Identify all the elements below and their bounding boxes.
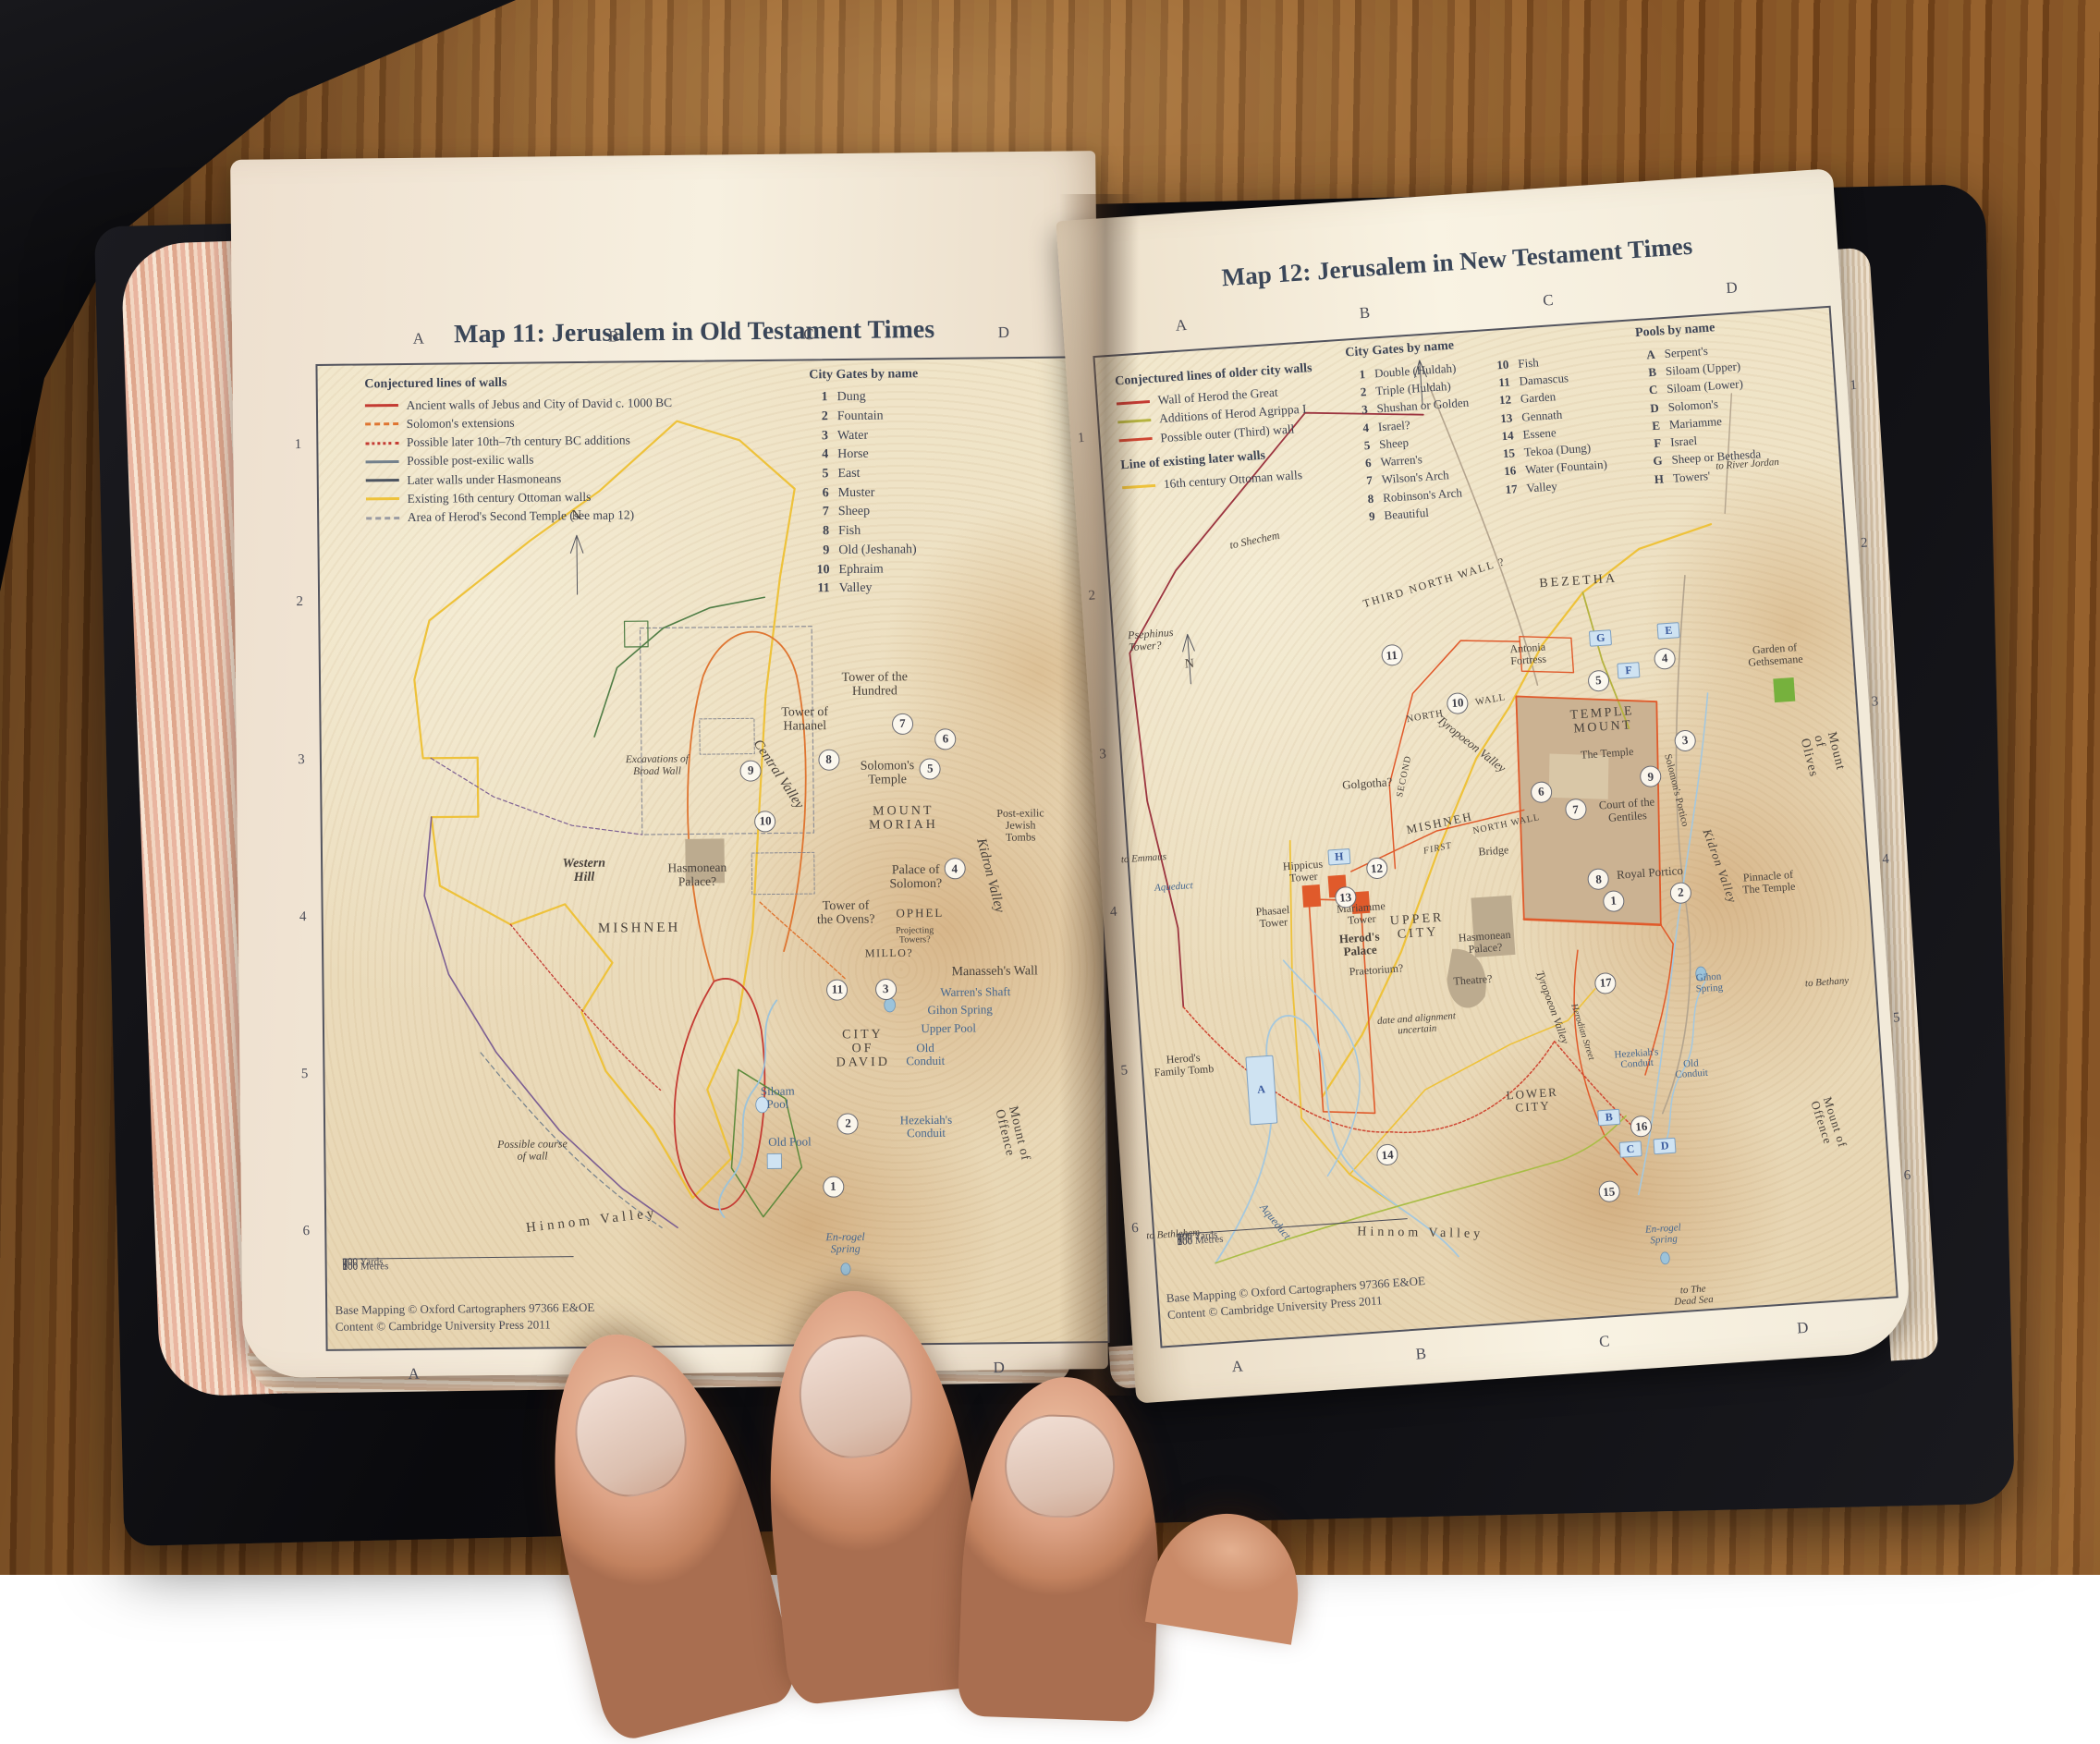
map-label: 3 <box>298 752 305 767</box>
map-label: A <box>1175 317 1188 335</box>
list-value: Fish <box>838 522 861 542</box>
list-value: Damascus <box>1519 369 1569 390</box>
list-value: Gennath <box>1521 405 1563 425</box>
fingernail <box>564 1365 699 1507</box>
map-label: 6 <box>302 1224 310 1238</box>
list-value: Dung <box>836 388 865 408</box>
list-value: Mariamme <box>1668 412 1722 433</box>
map-label: 5 <box>1120 1063 1129 1079</box>
list-key: H <box>1644 470 1664 489</box>
list-value: Fish <box>1518 353 1540 372</box>
gates-items: 1Dung2Fountain3Water4Horse5East6Muster7S… <box>809 385 1076 599</box>
pools-items: ASerpent'sBSiloam (Upper)CSiloam (Lower)… <box>1636 334 1837 489</box>
legend-swatch <box>365 460 398 463</box>
list-item: 7Sheep <box>811 501 1076 523</box>
gates-header: City Gates by name <box>809 364 1074 386</box>
map11-credits: Base Mapping © Oxford Cartographers 9736… <box>336 1297 804 1335</box>
legend-label: Possible later 10th–7th century BC addit… <box>407 431 630 452</box>
legend-swatch <box>1117 419 1151 423</box>
legend-swatch <box>366 497 399 500</box>
map12-legend-older-walls: Conjectured lines of older city walls Wa… <box>1115 357 1350 496</box>
list-item: 9Old (Jeshanah) <box>811 539 1076 561</box>
legend-swatch <box>366 517 399 519</box>
list-value: East <box>837 465 860 484</box>
list-value: Sheep <box>1379 433 1410 453</box>
legend-swatch <box>1119 437 1153 442</box>
map11-panel: Conjectured lines of walls Ancient walls… <box>315 356 1109 1351</box>
map12-gates-list: City Gates by name 1Double (Huldah)2Trip… <box>1345 324 1651 526</box>
list-key: 2 <box>810 408 828 427</box>
list-key: 4 <box>1349 419 1369 438</box>
map-label: B <box>1359 305 1371 323</box>
list-key: 7 <box>1353 471 1373 491</box>
map-label: A <box>1231 1358 1244 1375</box>
map-label: 4 <box>299 909 307 924</box>
list-key: 9 <box>811 542 829 561</box>
list-key: C <box>1639 381 1658 400</box>
list-key: 1 <box>809 388 827 408</box>
map11-gates-list: City Gates by name 1Dung2Fountain3Water4… <box>809 364 1077 600</box>
fingernail <box>793 1330 918 1463</box>
list-key: 12 <box>1492 391 1511 410</box>
list-key: 13 <box>1494 409 1513 428</box>
legend-swatch <box>365 422 398 425</box>
list-value: Old (Jeshanah) <box>838 541 917 561</box>
legend-items: Wall of Herod the GreatAdditions of Hero… <box>1116 379 1347 450</box>
list-value: Essene <box>1522 423 1557 444</box>
legend-swatch <box>365 479 398 482</box>
list-value: Towers' <box>1672 467 1711 487</box>
list-key: 3 <box>810 427 828 446</box>
list-value: Israel? <box>1377 416 1410 436</box>
list-item: 8Fish <box>811 520 1076 543</box>
list-key: 6 <box>1352 454 1372 473</box>
legend-swatch <box>1122 483 1155 488</box>
list-key: 6 <box>811 484 829 504</box>
list-key: 5 <box>810 465 828 484</box>
map-label: D <box>1726 279 1739 297</box>
map11-title: Map 11: Jerusalem in Old Testament Times <box>343 314 1045 351</box>
right-page[interactable]: Map 12: Jerusalem in New Testament Times <box>1056 168 1912 1403</box>
list-value: Fountain <box>837 407 884 426</box>
list-value: Garden <box>1520 388 1556 409</box>
list-key: 8 <box>1355 489 1374 508</box>
map-label: D <box>1796 1320 1809 1337</box>
legend-label: Possible post-exilic walls <box>407 451 533 471</box>
list-value: Israel <box>1670 432 1698 451</box>
map12-panel: Conjectured lines of older city walls Wa… <box>1093 306 1898 1348</box>
list-item: 10Ephraim <box>811 558 1076 580</box>
map-label: C <box>1543 292 1555 310</box>
list-key: A <box>1636 346 1655 365</box>
list-key: 8 <box>811 522 829 542</box>
list-key: 4 <box>810 445 828 465</box>
legend-header: Conjectured lines of walls <box>364 370 801 394</box>
list-item: 5East <box>810 462 1075 484</box>
map-label: 2 <box>296 594 303 609</box>
scale-tick: 300 Metres <box>342 1261 388 1273</box>
list-value: Horse <box>837 445 869 465</box>
legend-swatch <box>365 442 398 445</box>
list-value: Beautiful <box>1384 504 1430 524</box>
left-page[interactable]: Map 11: Jerusalem in Old Testament Times <box>230 151 1108 1378</box>
list-key: 11 <box>1491 373 1510 393</box>
photo-scene: Map 11: Jerusalem in Old Testament Times <box>0 0 2100 1575</box>
legend-label: Later walls under Hasmoneans <box>407 470 561 490</box>
gates-col2: 10Fish11Damascus12Garden13Gennath14Essen… <box>1490 349 1610 517</box>
list-value: Valley <box>1526 477 1557 496</box>
map-label: 2 <box>1088 589 1096 604</box>
list-key: 14 <box>1495 426 1514 445</box>
legend-items: Ancient walls of Jebus and City of David… <box>364 392 802 528</box>
map-label: 4 <box>1109 905 1117 921</box>
list-key: 10 <box>811 561 829 580</box>
list-value: Muster <box>838 483 875 503</box>
list-value: Water <box>837 426 868 445</box>
list-key: D <box>1640 398 1659 418</box>
map12-pools-list: Pools by name ASerpent'sBSiloam (Upper)C… <box>1635 311 1837 488</box>
list-key: 9 <box>1356 507 1375 527</box>
legend-label: Solomon's extensions <box>407 414 515 433</box>
list-key: 17 <box>1498 480 1518 499</box>
map-label: 6 <box>1131 1221 1140 1237</box>
list-key: B <box>1637 363 1656 383</box>
map-label: B <box>1415 1346 1427 1363</box>
map-label: C <box>1599 1333 1611 1350</box>
list-value: Sheep <box>838 503 870 522</box>
list-key: 5 <box>1351 436 1371 456</box>
map-label: 1 <box>1077 431 1085 446</box>
map-label: 1 <box>295 437 302 452</box>
map12-title: Map 12: Jerusalem in New Testament Times <box>1096 224 1817 301</box>
list-key: 1 <box>1346 365 1365 384</box>
list-key: 16 <box>1497 462 1517 482</box>
list-key: 2 <box>1348 383 1367 402</box>
list-value: Valley <box>839 579 873 599</box>
map-label: 5 <box>301 1067 309 1081</box>
list-key: 3 <box>1349 401 1368 421</box>
fingernail <box>1004 1413 1117 1519</box>
legend-label: Area of Herod's Second Temple (see map 1… <box>408 506 634 527</box>
legend-swatch <box>1117 400 1150 405</box>
list-key: E <box>1641 417 1660 436</box>
legend-label: Existing 16th century Ottoman walls <box>407 488 591 508</box>
gates-col1: 1Double (Huldah)2Triple (Huldah)3Shushan… <box>1346 359 1476 527</box>
list-item: 6Muster <box>811 482 1076 504</box>
list-value: Ephraim <box>838 560 883 579</box>
list-key: 10 <box>1490 356 1509 375</box>
map11-legend: Conjectured lines of walls Ancient walls… <box>364 370 802 528</box>
legend-label: Ancient walls of Jebus and City of David… <box>406 394 672 415</box>
list-key: 7 <box>811 504 829 523</box>
legend-swatch <box>365 404 398 407</box>
list-key: F <box>1642 434 1662 454</box>
list-item: 11Valley <box>812 578 1077 600</box>
list-key: 11 <box>812 579 830 599</box>
list-key: 15 <box>1496 444 1515 463</box>
map-label: 3 <box>1099 747 1107 762</box>
list-key: G <box>1643 452 1663 471</box>
